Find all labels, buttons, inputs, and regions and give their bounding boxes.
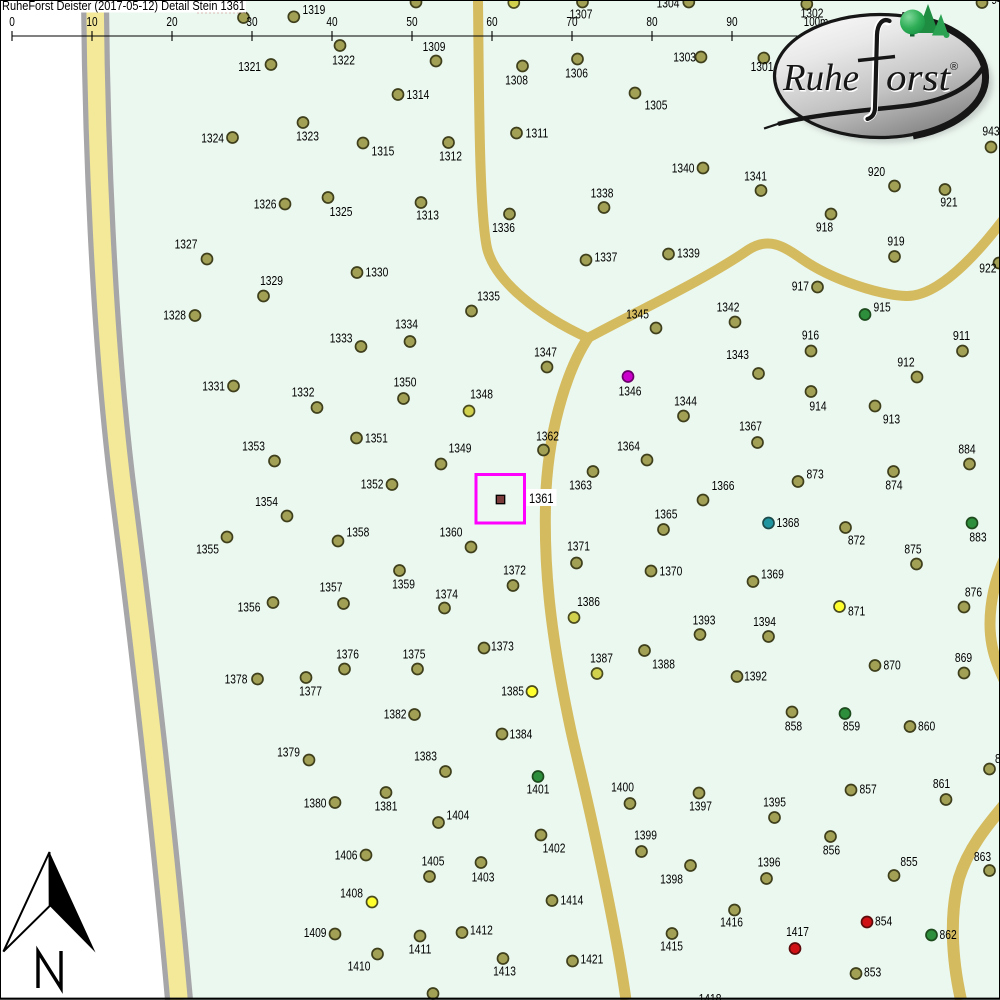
svg-text:1333: 1333 (330, 331, 353, 346)
svg-text:1414: 1414 (561, 893, 584, 908)
svg-text:1340: 1340 (672, 161, 695, 176)
svg-text:1373: 1373 (491, 639, 514, 654)
svg-text:1313: 1313 (416, 208, 439, 223)
svg-text:®: ® (950, 61, 958, 73)
svg-text:860: 860 (918, 719, 935, 734)
svg-text:1376: 1376 (336, 647, 359, 662)
svg-text:1402: 1402 (543, 841, 566, 856)
svg-text:1338: 1338 (591, 186, 614, 201)
svg-text:1395: 1395 (763, 795, 786, 810)
svg-text:1369: 1369 (761, 567, 784, 582)
svg-text:1306: 1306 (565, 66, 588, 81)
svg-text:1305: 1305 (645, 98, 668, 113)
svg-text:1364: 1364 (617, 439, 640, 454)
svg-text:RuheForst Deister (2017-05-12): RuheForst Deister (2017-05-12) Detail St… (2, 0, 245, 13)
svg-text:orst: orst (886, 57, 952, 99)
svg-text:1359: 1359 (392, 577, 415, 592)
svg-text:1387: 1387 (590, 651, 613, 666)
svg-text:1410: 1410 (348, 959, 371, 974)
svg-text:1396: 1396 (758, 855, 781, 870)
svg-text:1329: 1329 (260, 273, 283, 288)
svg-text:1417: 1417 (786, 924, 809, 939)
svg-text:1403: 1403 (472, 870, 495, 885)
svg-text:871: 871 (848, 604, 865, 619)
svg-text:856: 856 (823, 843, 840, 858)
svg-text:1344: 1344 (674, 394, 697, 409)
svg-text:1366: 1366 (712, 478, 735, 493)
svg-text:1326: 1326 (254, 197, 277, 212)
svg-text:1327: 1327 (175, 237, 198, 252)
svg-text:870: 870 (884, 658, 901, 673)
svg-text:916: 916 (802, 328, 819, 343)
svg-text:1357: 1357 (320, 580, 343, 595)
svg-text:1375: 1375 (403, 647, 426, 662)
svg-text:876: 876 (965, 585, 982, 600)
svg-text:30: 30 (246, 15, 257, 29)
svg-text:1335: 1335 (477, 289, 500, 304)
svg-text:1374: 1374 (435, 587, 458, 602)
svg-text:854: 854 (875, 914, 892, 929)
svg-text:1377: 1377 (299, 684, 322, 699)
svg-text:1323: 1323 (296, 129, 319, 144)
svg-text:921: 921 (940, 195, 957, 210)
svg-text:1411: 1411 (409, 942, 432, 957)
svg-text:1348: 1348 (470, 387, 493, 402)
svg-text:1416: 1416 (720, 915, 743, 930)
svg-text:859: 859 (843, 719, 860, 734)
svg-text:1382: 1382 (384, 707, 407, 722)
svg-text:1363: 1363 (569, 478, 592, 493)
svg-text:10: 10 (86, 15, 97, 29)
svg-text:1392: 1392 (744, 669, 767, 684)
svg-text:853: 853 (864, 965, 881, 980)
svg-text:919: 919 (887, 234, 904, 249)
svg-text:1308: 1308 (505, 73, 528, 88)
svg-text:884: 884 (958, 442, 975, 457)
svg-text:1330: 1330 (366, 265, 389, 280)
svg-text:1356: 1356 (238, 600, 261, 615)
svg-text:1334: 1334 (395, 317, 418, 332)
svg-text:1361: 1361 (529, 491, 554, 506)
svg-text:1388: 1388 (652, 657, 675, 672)
svg-text:917: 917 (792, 279, 809, 294)
svg-text:1386: 1386 (577, 594, 600, 609)
svg-text:1350: 1350 (394, 375, 417, 390)
svg-text:1383: 1383 (414, 749, 437, 764)
svg-text:1343: 1343 (726, 347, 749, 362)
svg-text:1372: 1372 (503, 563, 526, 578)
svg-text:1406: 1406 (335, 848, 358, 863)
svg-text:1328: 1328 (163, 308, 186, 323)
svg-text:60: 60 (486, 15, 497, 29)
svg-text:1394: 1394 (753, 614, 776, 629)
svg-text:1303: 1303 (673, 50, 696, 65)
svg-text:1353: 1353 (242, 439, 265, 454)
svg-text:1319: 1319 (303, 2, 326, 17)
svg-text:0: 0 (9, 15, 15, 29)
svg-text:875: 875 (904, 542, 921, 557)
svg-text:912: 912 (897, 355, 914, 370)
svg-text:1355: 1355 (196, 542, 219, 557)
svg-text:1412: 1412 (470, 923, 493, 938)
svg-text:943: 943 (982, 124, 999, 139)
svg-text:1322: 1322 (332, 53, 355, 68)
svg-text:1337: 1337 (595, 250, 618, 265)
svg-text:883: 883 (969, 530, 986, 545)
svg-text:915: 915 (874, 300, 891, 315)
svg-text:872: 872 (848, 533, 865, 548)
svg-text:1358: 1358 (347, 525, 370, 540)
svg-text:1367: 1367 (739, 419, 762, 434)
svg-text:1342: 1342 (717, 300, 740, 315)
svg-text:1398: 1398 (660, 872, 683, 887)
svg-text:1405: 1405 (422, 854, 445, 869)
svg-text:914: 914 (809, 399, 826, 414)
svg-text:1404: 1404 (447, 808, 470, 823)
svg-text:873: 873 (807, 467, 824, 482)
svg-text:1368: 1368 (777, 515, 800, 530)
svg-text:1309: 1309 (423, 39, 446, 54)
svg-text:1365: 1365 (655, 507, 678, 522)
svg-text:1352: 1352 (361, 477, 384, 492)
svg-text:50: 50 (406, 15, 417, 29)
svg-text:1401: 1401 (527, 782, 550, 797)
svg-text:1385: 1385 (501, 684, 524, 699)
svg-text:861: 861 (933, 776, 950, 791)
svg-text:869: 869 (955, 650, 972, 665)
svg-text:90: 90 (726, 15, 737, 29)
svg-text:1384: 1384 (510, 727, 533, 742)
svg-text:1378: 1378 (225, 672, 248, 687)
svg-text:1413: 1413 (493, 964, 516, 979)
svg-text:913: 913 (883, 412, 900, 427)
svg-text:1397: 1397 (689, 799, 712, 814)
svg-text:1304: 1304 (657, 0, 680, 11)
svg-text:858: 858 (785, 719, 802, 734)
svg-text:911: 911 (953, 328, 970, 343)
svg-text:1345: 1345 (626, 307, 649, 322)
svg-text:1371: 1371 (567, 539, 590, 554)
svg-text:1349: 1349 (449, 441, 472, 456)
svg-text:1311: 1311 (526, 126, 549, 141)
svg-text:1312: 1312 (439, 149, 462, 164)
svg-text:1360: 1360 (440, 525, 463, 540)
svg-text:1354: 1354 (255, 494, 278, 509)
svg-text:920: 920 (868, 164, 885, 179)
svg-text:1321: 1321 (238, 59, 261, 74)
svg-text:1421: 1421 (581, 952, 604, 967)
svg-text:1393: 1393 (693, 613, 716, 628)
svg-text:863: 863 (974, 849, 991, 864)
svg-text:1370: 1370 (660, 564, 683, 579)
svg-text:1346: 1346 (619, 384, 642, 399)
svg-text:1341: 1341 (744, 169, 767, 184)
svg-text:70: 70 (566, 15, 577, 29)
svg-text:1325: 1325 (330, 204, 353, 219)
svg-text:857: 857 (860, 782, 877, 797)
svg-text:922: 922 (979, 261, 996, 276)
svg-text:1409: 1409 (304, 925, 327, 940)
svg-text:1381: 1381 (375, 799, 398, 814)
svg-text:918: 918 (816, 220, 833, 235)
svg-text:1347: 1347 (534, 345, 557, 360)
svg-text:1324: 1324 (201, 131, 224, 146)
svg-text:1332: 1332 (292, 385, 315, 400)
svg-text:855: 855 (900, 854, 917, 869)
svg-text:1408: 1408 (340, 886, 363, 901)
svg-text:1314: 1314 (407, 87, 430, 102)
svg-text:1336: 1336 (492, 220, 515, 235)
svg-text:40: 40 (326, 15, 337, 29)
svg-text:874: 874 (885, 478, 902, 493)
svg-text:944: 944 (991, 0, 1000, 7)
svg-text:1351: 1351 (365, 431, 388, 446)
svg-text:20: 20 (166, 15, 177, 29)
svg-text:1331: 1331 (202, 379, 225, 394)
svg-text:1301: 1301 (751, 59, 774, 74)
svg-text:1380: 1380 (304, 796, 327, 811)
svg-text:80: 80 (646, 15, 657, 29)
svg-text:1400: 1400 (611, 780, 634, 795)
svg-text:1362: 1362 (536, 429, 559, 444)
svg-text:1415: 1415 (660, 939, 683, 954)
svg-text:1399: 1399 (634, 828, 657, 843)
svg-text:1315: 1315 (372, 144, 395, 159)
svg-text:Ruhe: Ruhe (782, 57, 859, 99)
svg-text:1379: 1379 (277, 745, 300, 760)
svg-text:862: 862 (940, 927, 957, 942)
svg-text:1339: 1339 (677, 246, 700, 261)
